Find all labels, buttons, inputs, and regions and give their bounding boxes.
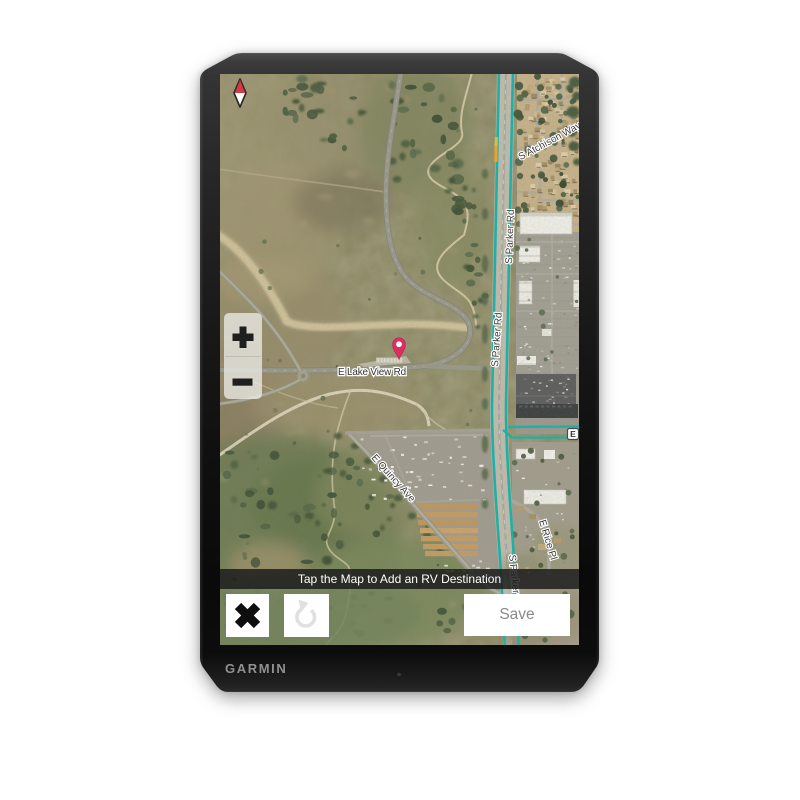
svg-text:S Parker Rd: S Parker Rd: [504, 209, 517, 264]
svg-text:E: E: [570, 429, 576, 439]
svg-text:E Lake View Rd: E Lake View Rd: [338, 367, 406, 378]
